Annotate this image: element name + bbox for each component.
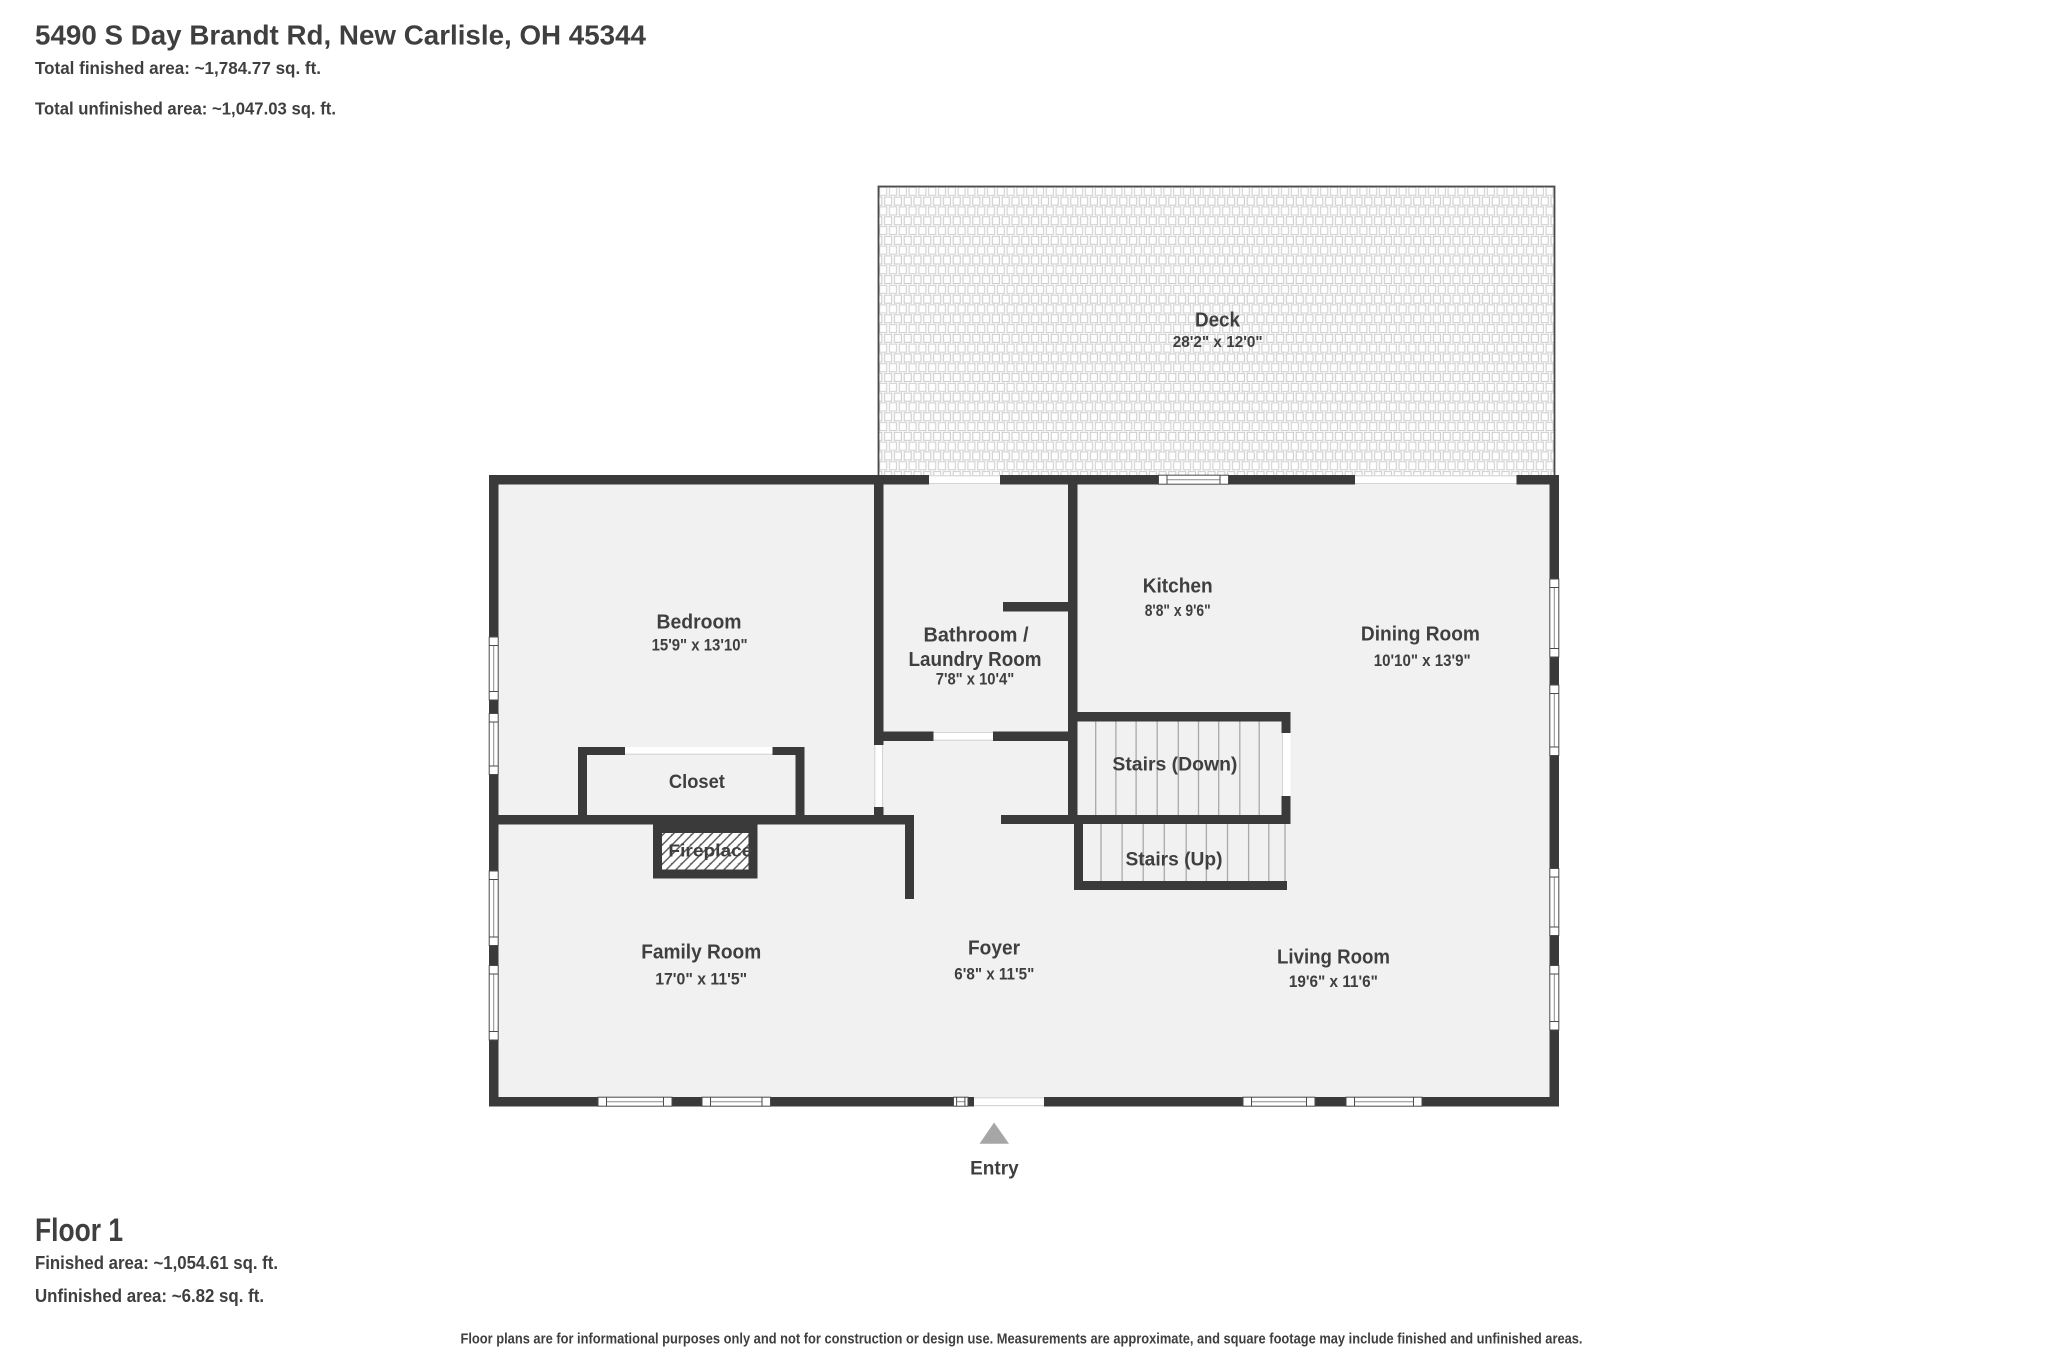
svg-text:Foyer: Foyer <box>968 938 1020 960</box>
svg-text:Finished area: ~1,054.61 sq. f: Finished area: ~1,054.61 sq. ft. <box>35 1253 278 1273</box>
svg-text:10'10" x 13'9": 10'10" x 13'9" <box>1374 651 1471 670</box>
svg-text:Floor 1: Floor 1 <box>35 1212 123 1248</box>
svg-text:Total unfinished area: ~1,047.: Total unfinished area: ~1,047.03 sq. ft. <box>35 99 336 119</box>
svg-text:Stairs (Up): Stairs (Up) <box>1126 850 1223 871</box>
svg-text:Unfinished area: ~6.82 sq. ft.: Unfinished area: ~6.82 sq. ft. <box>35 1286 264 1306</box>
svg-text:Closet: Closet <box>669 772 726 793</box>
svg-text:Stairs (Down): Stairs (Down) <box>1112 755 1237 776</box>
svg-text:17'0" x 11'5": 17'0" x 11'5" <box>655 970 747 989</box>
svg-text:7'8" x 10'4": 7'8" x 10'4" <box>936 670 1015 689</box>
svg-text:Bedroom: Bedroom <box>657 612 742 634</box>
svg-text:15'9" x 13'10": 15'9" x 13'10" <box>652 636 748 655</box>
svg-text:Entry: Entry <box>970 1159 1019 1180</box>
svg-text:8'8" x 9'6": 8'8" x 9'6" <box>1145 601 1211 620</box>
svg-text:Dining Room: Dining Room <box>1361 624 1480 646</box>
svg-text:Total finished area: ~1,784.77: Total finished area: ~1,784.77 sq. ft. <box>35 58 321 78</box>
svg-text:Family Room: Family Room <box>641 942 761 964</box>
svg-text:Kitchen: Kitchen <box>1143 576 1213 598</box>
svg-text:Floor plans are for informatio: Floor plans are for informational purpos… <box>461 1332 1583 1348</box>
svg-text:5490 S Day Brandt Rd, New Carl: 5490 S Day Brandt Rd, New Carlisle, OH 4… <box>35 20 646 51</box>
svg-text:Living Room: Living Room <box>1277 947 1390 969</box>
svg-text:Fireplace: Fireplace <box>668 841 752 861</box>
svg-text:Laundry Room: Laundry Room <box>909 649 1042 671</box>
svg-text:28'2" x 12'0": 28'2" x 12'0" <box>1173 334 1263 351</box>
svg-text:6'8" x 11'5": 6'8" x 11'5" <box>954 965 1034 984</box>
svg-text:Bathroom /: Bathroom / <box>924 625 1029 647</box>
svg-text:19'6" x 11'6": 19'6" x 11'6" <box>1289 972 1378 991</box>
svg-text:Deck: Deck <box>1195 309 1241 332</box>
